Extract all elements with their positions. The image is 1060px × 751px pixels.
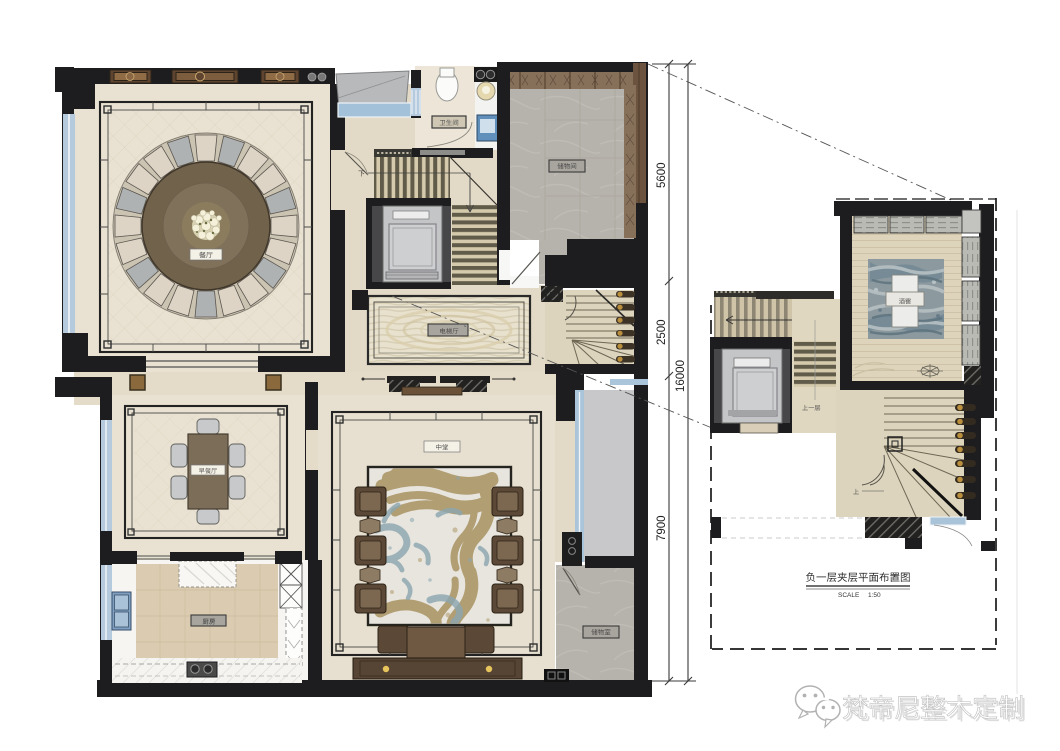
svg-text:SCALE: SCALE [838,592,860,599]
svg-text:5600: 5600 [656,162,668,188]
svg-text:2500: 2500 [656,319,668,345]
svg-text:1:50: 1:50 [868,592,881,599]
svg-text:7900: 7900 [656,515,668,541]
svg-text:16000: 16000 [675,360,687,392]
